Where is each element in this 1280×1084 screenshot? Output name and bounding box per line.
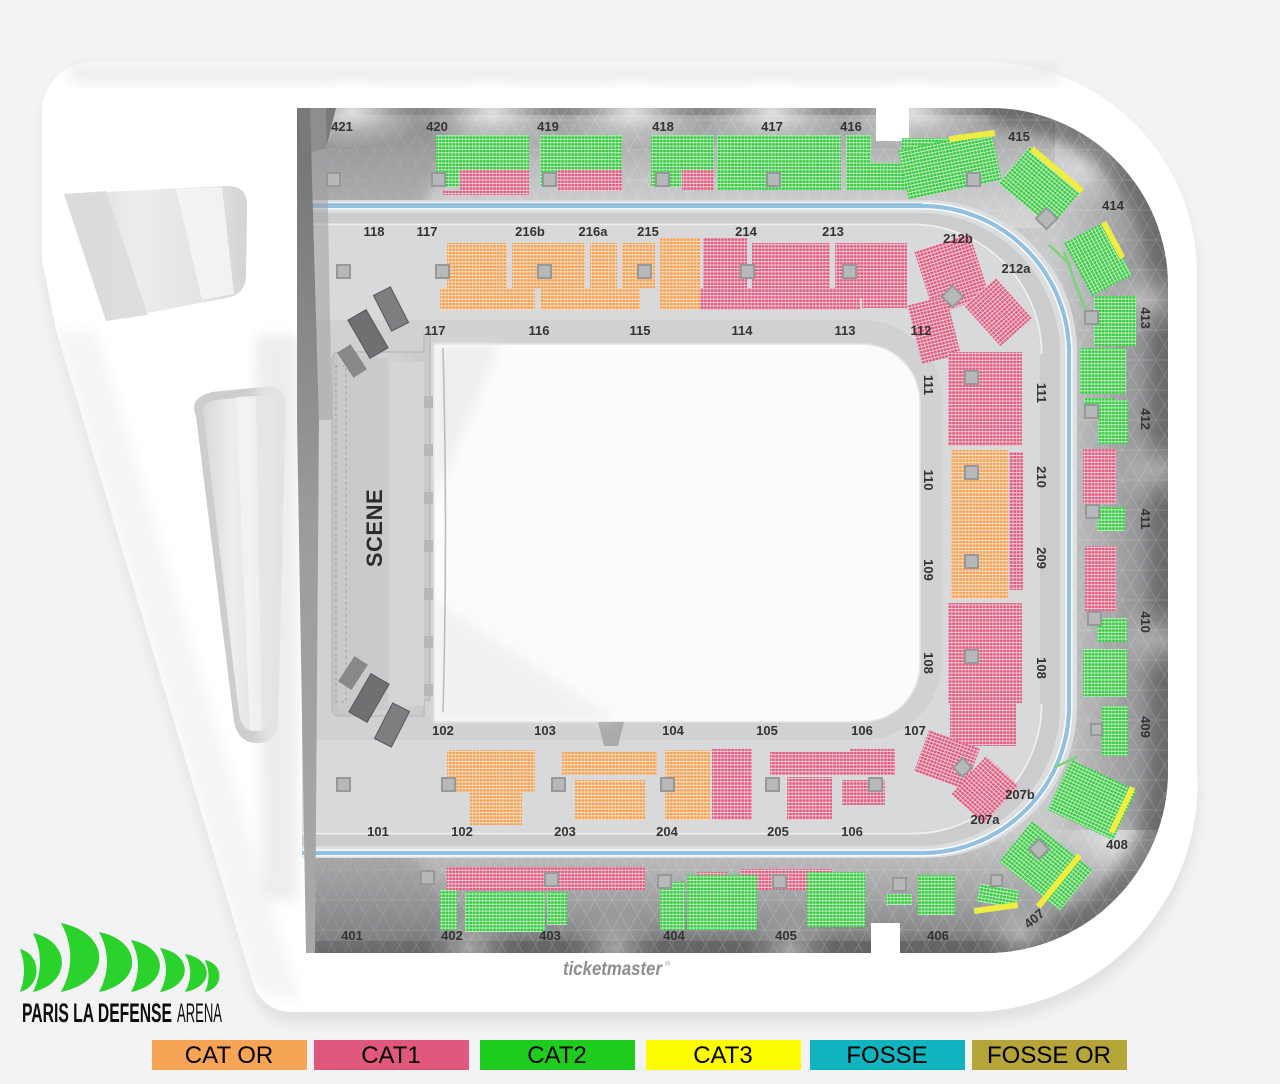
svg-text:417: 417 <box>761 119 783 134</box>
svg-text:205: 205 <box>767 824 789 839</box>
svg-text:111: 111 <box>1034 383 1049 403</box>
svg-text:104: 104 <box>662 723 684 738</box>
svg-text:204: 204 <box>656 824 678 839</box>
svg-text:416: 416 <box>840 119 862 134</box>
svg-text:101: 101 <box>367 824 389 839</box>
svg-text:CAT OR: CAT OR <box>185 1042 273 1069</box>
svg-text:ARENA: ARENA <box>177 998 222 1028</box>
svg-text:CAT1: CAT1 <box>361 1042 421 1069</box>
svg-text:108: 108 <box>1034 657 1049 679</box>
svg-text:117: 117 <box>425 323 446 338</box>
svg-text:403: 403 <box>539 928 561 943</box>
svg-text:406: 406 <box>927 928 949 943</box>
svg-text:410: 410 <box>1138 611 1153 633</box>
svg-text:213: 213 <box>822 224 844 239</box>
svg-text:118: 118 <box>364 224 385 239</box>
svg-text:405: 405 <box>775 928 797 943</box>
svg-text:415: 415 <box>1008 129 1030 144</box>
svg-text:113: 113 <box>835 323 856 338</box>
svg-text:408: 408 <box>1106 837 1128 852</box>
svg-text:413: 413 <box>1138 307 1153 329</box>
svg-text:®: ® <box>665 960 671 968</box>
svg-text:111: 111 <box>921 375 936 395</box>
svg-text:CAT2: CAT2 <box>527 1042 587 1069</box>
svg-text:212a: 212a <box>1002 261 1032 276</box>
svg-text:209: 209 <box>1034 547 1049 569</box>
svg-text:401: 401 <box>341 928 363 943</box>
svg-text:412: 412 <box>1138 408 1153 430</box>
svg-text:114: 114 <box>732 323 754 338</box>
svg-text:106: 106 <box>841 824 863 839</box>
svg-text:110: 110 <box>921 470 936 491</box>
svg-text:PARIS LA DEFENSE: PARIS LA DEFENSE <box>22 998 172 1028</box>
svg-text:102: 102 <box>451 824 473 839</box>
svg-text:404: 404 <box>663 928 685 943</box>
svg-text:CAT3: CAT3 <box>693 1042 753 1069</box>
svg-text:214: 214 <box>735 224 757 239</box>
svg-text:212b: 212b <box>943 231 973 246</box>
svg-text:108: 108 <box>921 652 936 674</box>
svg-text:203: 203 <box>554 824 576 839</box>
svg-text:421: 421 <box>331 119 353 134</box>
svg-text:215: 215 <box>637 224 659 239</box>
svg-text:207b: 207b <box>1005 787 1035 802</box>
svg-text:117: 117 <box>417 224 438 239</box>
svg-text:419: 419 <box>537 119 559 134</box>
svg-text:216a: 216a <box>579 224 609 239</box>
svg-text:210: 210 <box>1034 466 1049 488</box>
svg-text:116: 116 <box>529 323 550 338</box>
svg-text:ticketmaster: ticketmaster <box>563 959 663 980</box>
svg-text:112: 112 <box>911 323 932 338</box>
svg-text:105: 105 <box>756 723 778 738</box>
svg-text:418: 418 <box>652 119 674 134</box>
svg-text:409: 409 <box>1138 716 1153 738</box>
svg-text:102: 102 <box>432 723 454 738</box>
svg-text:420: 420 <box>426 119 448 134</box>
svg-text:FOSSE: FOSSE <box>846 1042 927 1069</box>
svg-text:106: 106 <box>851 723 873 738</box>
svg-text:207a: 207a <box>971 812 1001 827</box>
svg-text:402: 402 <box>441 928 463 943</box>
svg-text:115: 115 <box>630 323 651 338</box>
svg-text:411: 411 <box>1138 509 1153 530</box>
svg-text:109: 109 <box>921 559 936 581</box>
svg-text:103: 103 <box>534 723 556 738</box>
svg-text:SCENE: SCENE <box>362 489 387 567</box>
svg-text:FOSSE OR: FOSSE OR <box>987 1042 1111 1069</box>
svg-text:216b: 216b <box>515 224 545 239</box>
svg-text:414: 414 <box>1102 198 1124 213</box>
svg-text:107: 107 <box>904 723 926 738</box>
